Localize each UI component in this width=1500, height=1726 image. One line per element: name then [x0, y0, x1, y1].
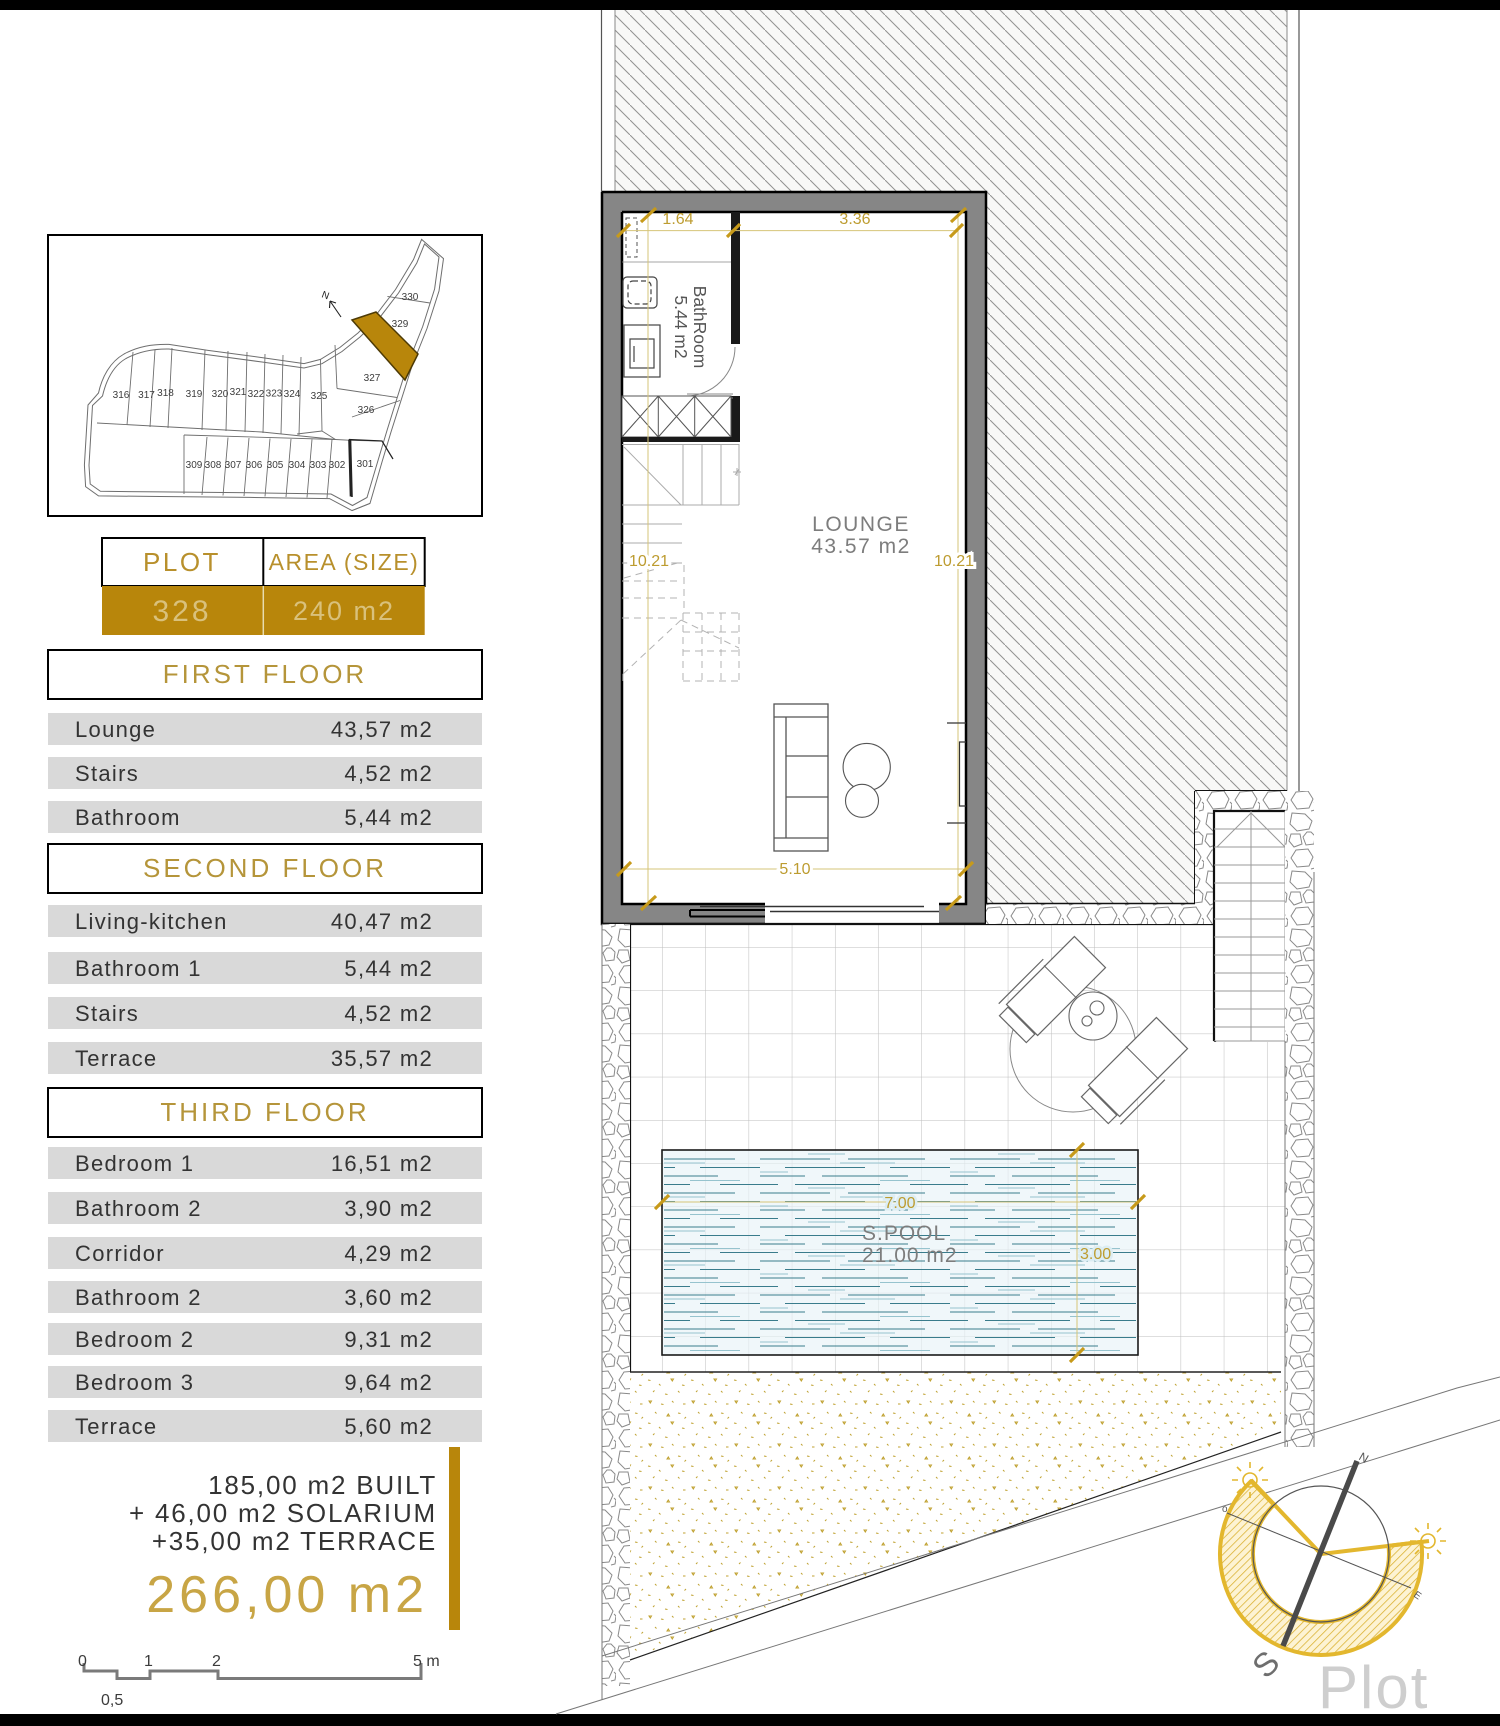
svg-text:5.10: 5.10 — [779, 861, 810, 878]
svg-text:+ 46,00 m2 SOLARIUM: + 46,00 m2 SOLARIUM — [129, 1498, 437, 1528]
svg-text:0,5: 0,5 — [101, 1692, 123, 1709]
svg-text:10.21: 10.21 — [629, 553, 669, 570]
svg-text:Plot: Plot — [1318, 1654, 1429, 1721]
svg-text:306: 306 — [246, 460, 263, 471]
svg-text:43.57 m2: 43.57 m2 — [811, 535, 911, 558]
svg-text:302: 302 — [329, 460, 346, 471]
svg-text:5,60 m2: 5,60 m2 — [344, 1414, 433, 1439]
svg-text:320: 320 — [212, 389, 229, 400]
svg-text:Living-kitchen: Living-kitchen — [75, 909, 228, 934]
svg-text:Corridor: Corridor — [75, 1241, 165, 1266]
svg-text:35,57 m2: 35,57 m2 — [331, 1046, 433, 1071]
svg-text:301: 301 — [357, 459, 374, 470]
svg-text:325: 325 — [311, 391, 328, 402]
svg-text:21.00 m2: 21.00 m2 — [862, 1244, 958, 1267]
svg-text:Bedroom 3: Bedroom 3 — [75, 1370, 194, 1395]
svg-text:327: 327 — [364, 373, 381, 384]
svg-text:Bathroom 2: Bathroom 2 — [75, 1196, 202, 1221]
svg-text:BathRoom: BathRoom — [690, 286, 710, 369]
svg-text:240 m2: 240 m2 — [293, 596, 395, 626]
svg-text:5 m: 5 m — [413, 1653, 440, 1670]
svg-text:Lounge: Lounge — [75, 717, 156, 742]
svg-text:o: o — [1222, 1504, 1228, 1515]
svg-text:Stairs: Stairs — [75, 761, 139, 786]
svg-text:1: 1 — [144, 1653, 153, 1670]
svg-text:+35,00 m2 TERRACE: +35,00 m2 TERRACE — [152, 1526, 437, 1556]
svg-text:328: 328 — [152, 595, 211, 628]
svg-text:324: 324 — [284, 389, 301, 400]
svg-text:305: 305 — [267, 460, 284, 471]
svg-text:4,52 m2: 4,52 m2 — [344, 761, 433, 786]
svg-text:Terrace: Terrace — [75, 1414, 157, 1439]
svg-text:3,60 m2: 3,60 m2 — [344, 1285, 433, 1310]
svg-text:Stairs: Stairs — [75, 1001, 139, 1026]
svg-text:185,00 m2 BUILT: 185,00 m2 BUILT — [208, 1470, 437, 1500]
svg-text:4,29 m2: 4,29 m2 — [344, 1241, 433, 1266]
svg-text:5.44 m2: 5.44 m2 — [671, 295, 691, 358]
svg-text:43,57 m2: 43,57 m2 — [331, 717, 433, 742]
svg-text:2: 2 — [212, 1653, 221, 1670]
svg-text:Terrace: Terrace — [75, 1046, 157, 1071]
svg-text:40,47 m2: 40,47 m2 — [331, 909, 433, 934]
svg-text:3,90 m2: 3,90 m2 — [344, 1196, 433, 1221]
svg-text:307: 307 — [225, 460, 242, 471]
svg-text:4,52 m2: 4,52 m2 — [344, 1001, 433, 1026]
svg-text:326: 326 — [358, 405, 375, 416]
svg-text:16,51 m2: 16,51 m2 — [331, 1151, 433, 1176]
svg-text:Bathroom 2: Bathroom 2 — [75, 1285, 202, 1310]
svg-text:10.21: 10.21 — [934, 553, 974, 570]
svg-text:308: 308 — [205, 460, 222, 471]
svg-text:LOUNGE: LOUNGE — [812, 513, 910, 536]
svg-text:330: 330 — [402, 292, 419, 303]
svg-text:321: 321 — [230, 387, 247, 398]
svg-text:9,64 m2: 9,64 m2 — [344, 1370, 433, 1395]
svg-text:3.36: 3.36 — [839, 211, 870, 228]
svg-text:7.00: 7.00 — [884, 1195, 915, 1212]
svg-text:322: 322 — [248, 389, 265, 400]
svg-text:9,31 m2: 9,31 m2 — [344, 1327, 433, 1352]
svg-text:Bathroom: Bathroom — [75, 805, 181, 830]
svg-text:5,44 m2: 5,44 m2 — [344, 805, 433, 830]
svg-text:PLOT: PLOT — [143, 547, 221, 577]
svg-text:SECOND FLOOR: SECOND FLOOR — [143, 853, 387, 883]
svg-text:Bedroom 2: Bedroom 2 — [75, 1327, 194, 1352]
svg-text:Bathroom 1: Bathroom 1 — [75, 956, 202, 981]
svg-text:309: 309 — [186, 460, 203, 471]
svg-text:319: 319 — [186, 389, 203, 400]
svg-text:329: 329 — [392, 319, 409, 330]
svg-text:5,44 m2: 5,44 m2 — [344, 956, 433, 981]
svg-text:303: 303 — [310, 460, 327, 471]
svg-text:317: 317 — [138, 390, 155, 401]
svg-text:Bedroom 1: Bedroom 1 — [75, 1151, 194, 1176]
svg-text:323: 323 — [266, 389, 283, 400]
svg-text:304: 304 — [289, 460, 306, 471]
svg-text:3.00: 3.00 — [1080, 1246, 1111, 1263]
svg-text:316: 316 — [113, 390, 130, 401]
svg-text:AREA (SIZE): AREA (SIZE) — [269, 549, 420, 575]
svg-text:FIRST FLOOR: FIRST FLOOR — [163, 659, 367, 689]
svg-text:0: 0 — [78, 1653, 87, 1670]
svg-text:THIRD FLOOR: THIRD FLOOR — [160, 1097, 369, 1127]
svg-text:266,00 m2: 266,00 m2 — [146, 1566, 428, 1624]
svg-text:1.64: 1.64 — [662, 211, 693, 228]
svg-text:S.POOL: S.POOL — [862, 1222, 946, 1245]
svg-text:318: 318 — [157, 388, 174, 399]
